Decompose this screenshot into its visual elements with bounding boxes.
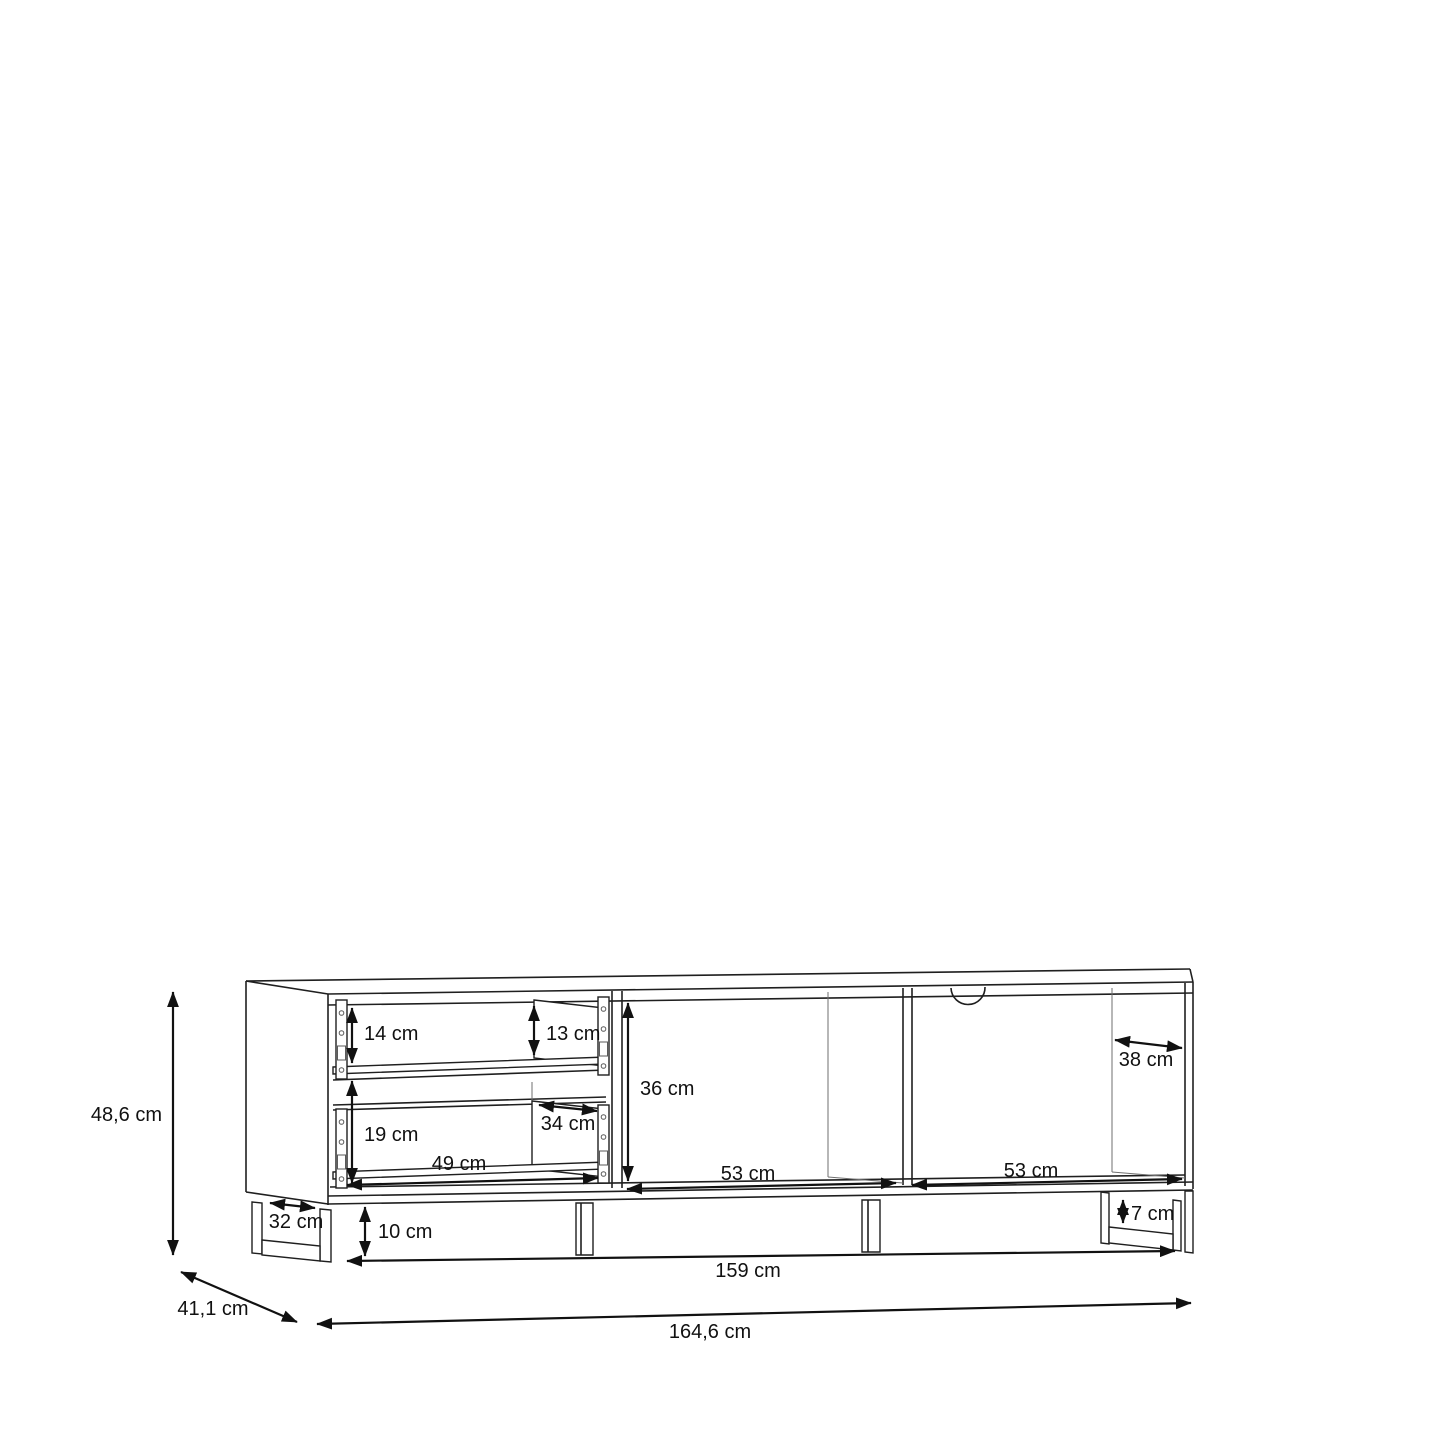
- dim-overall-depth-label: 41,1 cm: [177, 1298, 248, 1320]
- dim-overall-width: 164,6 cm: [317, 1303, 1191, 1343]
- dim-right-shelf-width: 53 cm: [912, 1160, 1182, 1185]
- dim-bottom-drawer-height-label: 19 cm: [364, 1124, 418, 1146]
- furniture-dimension-diagram-page: 48,6 cm 41,1 cm 164,6 cm 159 cm 10 cm 32…: [0, 0, 1445, 1445]
- dim-shelf-inner-height-label: 36 cm: [640, 1078, 694, 1100]
- dim-leg-height-label: 10 cm: [378, 1221, 432, 1243]
- dim-middle-shelf-width-label: 53 cm: [721, 1163, 775, 1185]
- dim-top-drawer-rear-height-label: 13 cm: [546, 1023, 600, 1045]
- dim-drawer-inner-depth-label: 34 cm: [541, 1113, 595, 1135]
- left-side-panel: [246, 981, 328, 1205]
- dimension-drawing-canvas: 48,6 cm 41,1 cm 164,6 cm 159 cm 10 cm 32…: [0, 0, 1445, 1445]
- dim-top-drawer-front-height-label: 14 cm: [364, 1023, 418, 1045]
- dim-overall-depth: 41,1 cm: [177, 1272, 297, 1322]
- dim-right-leg-inner-height-label: 7 cm: [1131, 1203, 1174, 1225]
- slide-bottom-left: [336, 1109, 347, 1188]
- right-side-panel: [1185, 982, 1193, 1189]
- dim-right-leg-inner-height: 7 cm: [1123, 1200, 1174, 1225]
- divider-drawers-middle: [612, 991, 622, 1188]
- dim-leg-height: 10 cm: [365, 1207, 432, 1256]
- dim-right-shelf-width-label: 53 cm: [1004, 1160, 1058, 1182]
- dim-base-width: 159 cm: [347, 1251, 1175, 1282]
- dim-base-width-label: 159 cm: [715, 1260, 781, 1282]
- top-panel: [246, 969, 1193, 1005]
- dim-shelf-inner-depth-label: 38 cm: [1119, 1049, 1173, 1071]
- dim-overall-width-label: 164,6 cm: [669, 1321, 751, 1343]
- dim-left-leg-depth-label: 32 cm: [269, 1211, 323, 1233]
- dim-drawer-inner-width-label: 49 cm: [432, 1153, 486, 1175]
- back-corner-lines: [828, 988, 1185, 1183]
- dim-shelf-inner-depth: 38 cm: [1115, 1040, 1182, 1071]
- middle-left-leg: [576, 1203, 593, 1255]
- slide-top-left: [336, 1000, 347, 1079]
- dim-bottom-drawer-height: 19 cm: [352, 1081, 418, 1183]
- middle-right-leg: [862, 1200, 880, 1252]
- divider-middle-right: [903, 988, 912, 1185]
- dimension-annotations: 48,6 cm 41,1 cm 164,6 cm 159 cm 10 cm 32…: [91, 992, 1191, 1343]
- slide-bottom-right: [598, 1105, 609, 1183]
- dim-overall-height-label: 48,6 cm: [91, 1104, 162, 1126]
- dim-shelf-inner-height: 36 cm: [628, 1003, 694, 1181]
- dim-overall-height: 48,6 cm: [91, 992, 173, 1255]
- dim-middle-shelf-width: 53 cm: [627, 1163, 896, 1189]
- dim-left-leg-depth: 32 cm: [269, 1203, 323, 1233]
- dim-top-drawer-front-height: 14 cm: [352, 1008, 418, 1063]
